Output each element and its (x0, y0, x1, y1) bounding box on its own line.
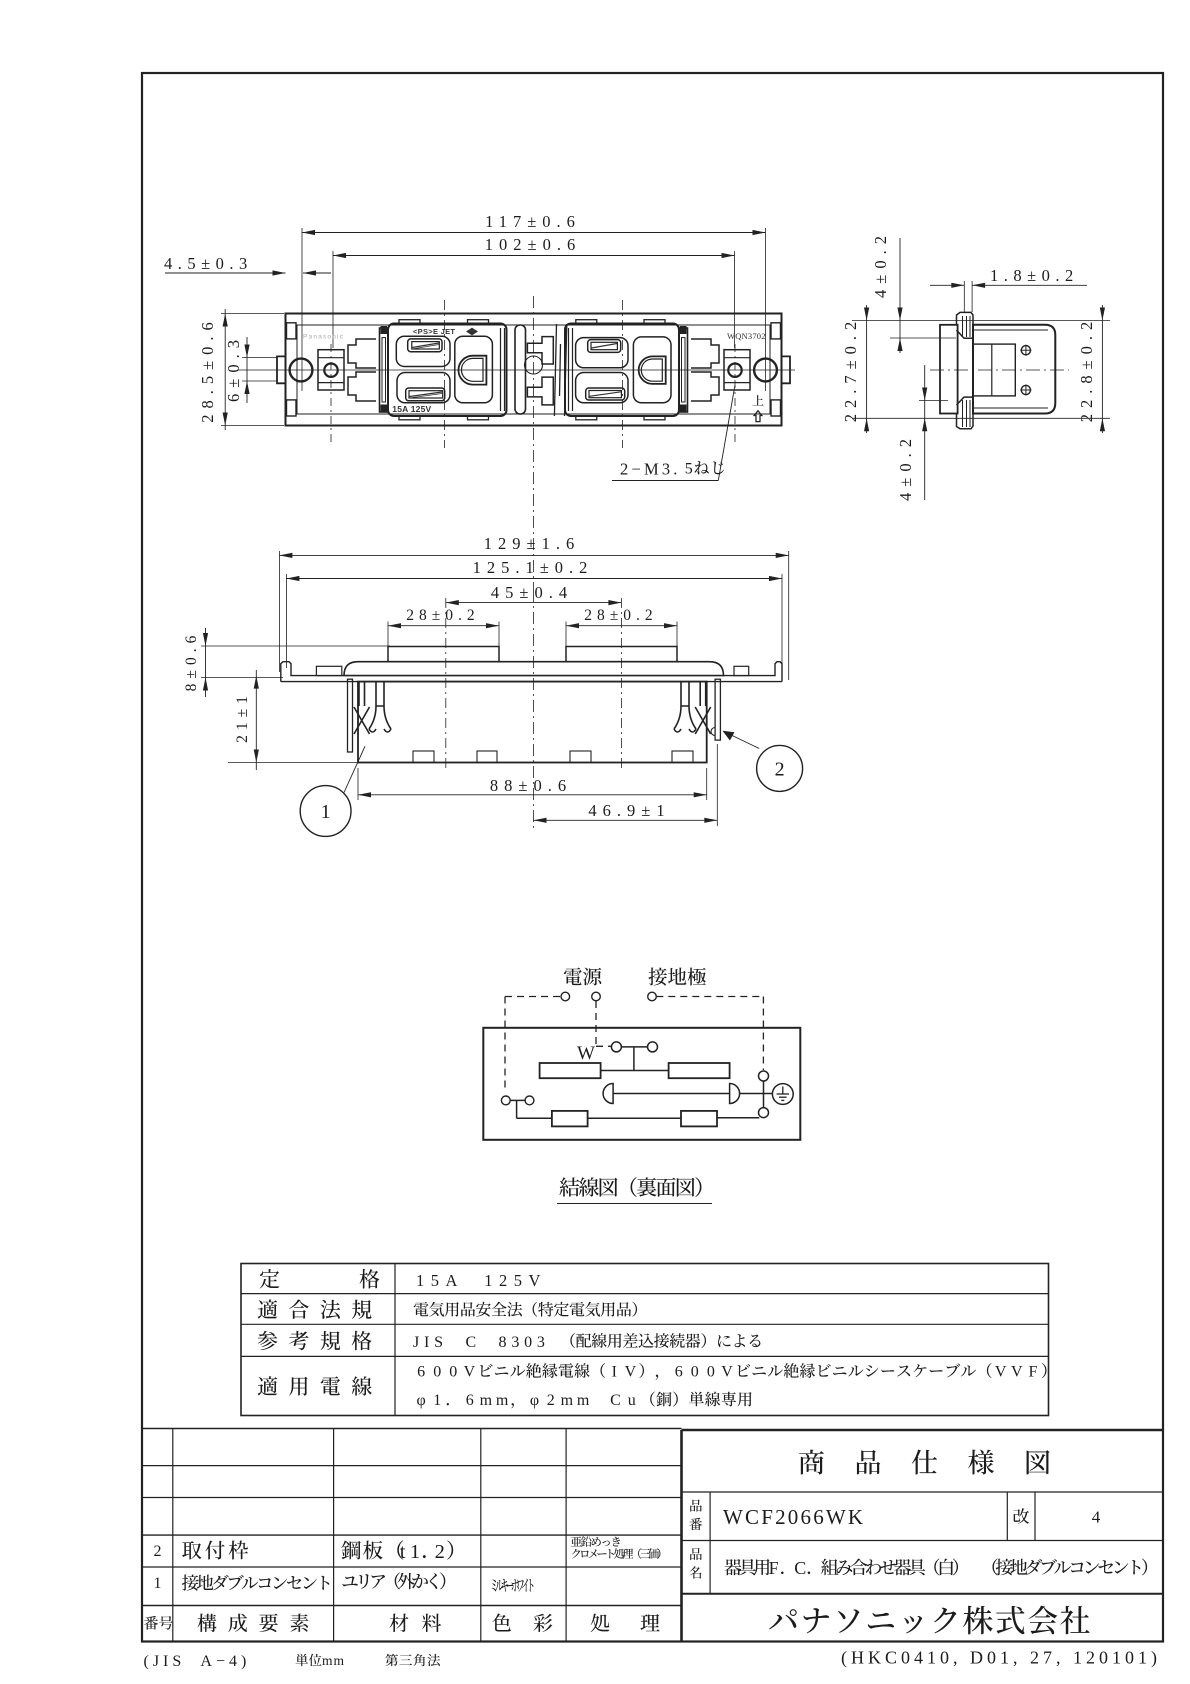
svg-text:2: 2 (547, 1392, 555, 1409)
svg-text:1: 1 (154, 1575, 162, 1592)
svg-text:28.5±0.6: 28.5±0.6 (198, 316, 217, 423)
svg-text:2: 2 (775, 759, 785, 781)
svg-text:4±0.2: 4±0.2 (871, 230, 890, 298)
svg-text:V: V (464, 1364, 476, 1381)
svg-text:6±0.3: 6±0.3 (224, 334, 243, 402)
svg-text:mm: mm (322, 1653, 345, 1668)
svg-text:V: V (721, 1364, 733, 1381)
svg-text:F: F (1028, 1364, 1037, 1381)
svg-text:0: 0 (433, 1364, 441, 1381)
svg-text:5: 5 (685, 461, 693, 478)
svg-text:u: u (628, 1392, 636, 1409)
svg-text:125.1±0.2: 125.1±0.2 (473, 558, 594, 577)
svg-text:m: m (561, 1392, 574, 1409)
svg-text:102±0.6: 102±0.6 (485, 235, 581, 254)
svg-text:WQN3702: WQN3702 (727, 331, 766, 341)
svg-text:V: V (625, 1364, 637, 1381)
svg-text:V: V (995, 1364, 1007, 1381)
svg-text:W: W (577, 1043, 595, 1064)
svg-text:1: 1 (410, 1541, 420, 1563)
svg-text:4±0.2: 4±0.2 (896, 433, 915, 501)
svg-text:<PS>E JET: <PS>E JET (413, 327, 455, 336)
svg-text:129±1.6: 129±1.6 (484, 534, 580, 553)
svg-text:I: I (612, 1364, 617, 1381)
svg-text:1: 1 (321, 801, 331, 823)
svg-text:45±0.4: 45±0.4 (491, 583, 573, 602)
svg-text:WCF2066WK: WCF2066WK (723, 1505, 865, 1529)
svg-text:15A 125V: 15A 125V (392, 404, 431, 414)
svg-text:8±0.6: 8±0.6 (183, 631, 200, 692)
svg-text:JIS C 8303: JIS C 8303 (413, 1334, 550, 1351)
svg-text:0: 0 (449, 1364, 457, 1381)
svg-text:4: 4 (1092, 1508, 1101, 1527)
svg-text:4.5±0.3: 4.5±0.3 (164, 254, 253, 273)
svg-text:2: 2 (435, 1541, 445, 1563)
svg-text:m: m (577, 1392, 590, 1409)
svg-text:V: V (1011, 1364, 1023, 1381)
svg-text:(HKC0410, D01, 27, 120101): (HKC0410, D01, 27, 120101) (841, 1648, 1161, 1669)
svg-text:117±0.6: 117±0.6 (485, 212, 581, 231)
svg-text:m: m (480, 1392, 493, 1409)
svg-text:0: 0 (691, 1364, 699, 1381)
svg-text:6: 6 (417, 1364, 425, 1381)
svg-text:28±0.2: 28±0.2 (406, 607, 479, 624)
svg-text:0: 0 (707, 1364, 715, 1381)
svg-text:21±1: 21±1 (234, 691, 251, 743)
svg-text:88±0.6: 88±0.6 (490, 776, 572, 795)
svg-text:φ: φ (416, 1392, 425, 1409)
svg-text:22.7±0.2: 22.7±0.2 (841, 316, 860, 423)
svg-text:15A 125V: 15A 125V (416, 1271, 547, 1290)
svg-text:2: 2 (154, 1543, 162, 1560)
svg-text:C: C (794, 1558, 806, 1578)
svg-text:φ: φ (530, 1392, 539, 1409)
svg-text:t: t (400, 1541, 406, 1563)
svg-text:Panasonic: Panasonic (303, 334, 344, 341)
svg-text:(JIS A−4): (JIS A−4) (144, 1653, 251, 1670)
svg-text:C: C (610, 1392, 621, 1409)
svg-text:6: 6 (466, 1392, 474, 1409)
svg-text:F: F (769, 1558, 779, 1578)
svg-text:22.8±0.2: 22.8±0.2 (1077, 316, 1096, 423)
svg-text:6: 6 (675, 1364, 683, 1381)
svg-text:1: 1 (433, 1392, 441, 1409)
svg-text:46.9±1: 46.9±1 (588, 801, 670, 820)
svg-text:1.8±0.2: 1.8±0.2 (990, 266, 1079, 285)
svg-text:m: m (496, 1392, 509, 1409)
svg-text:2−M3.: 2−M3. (620, 460, 681, 479)
